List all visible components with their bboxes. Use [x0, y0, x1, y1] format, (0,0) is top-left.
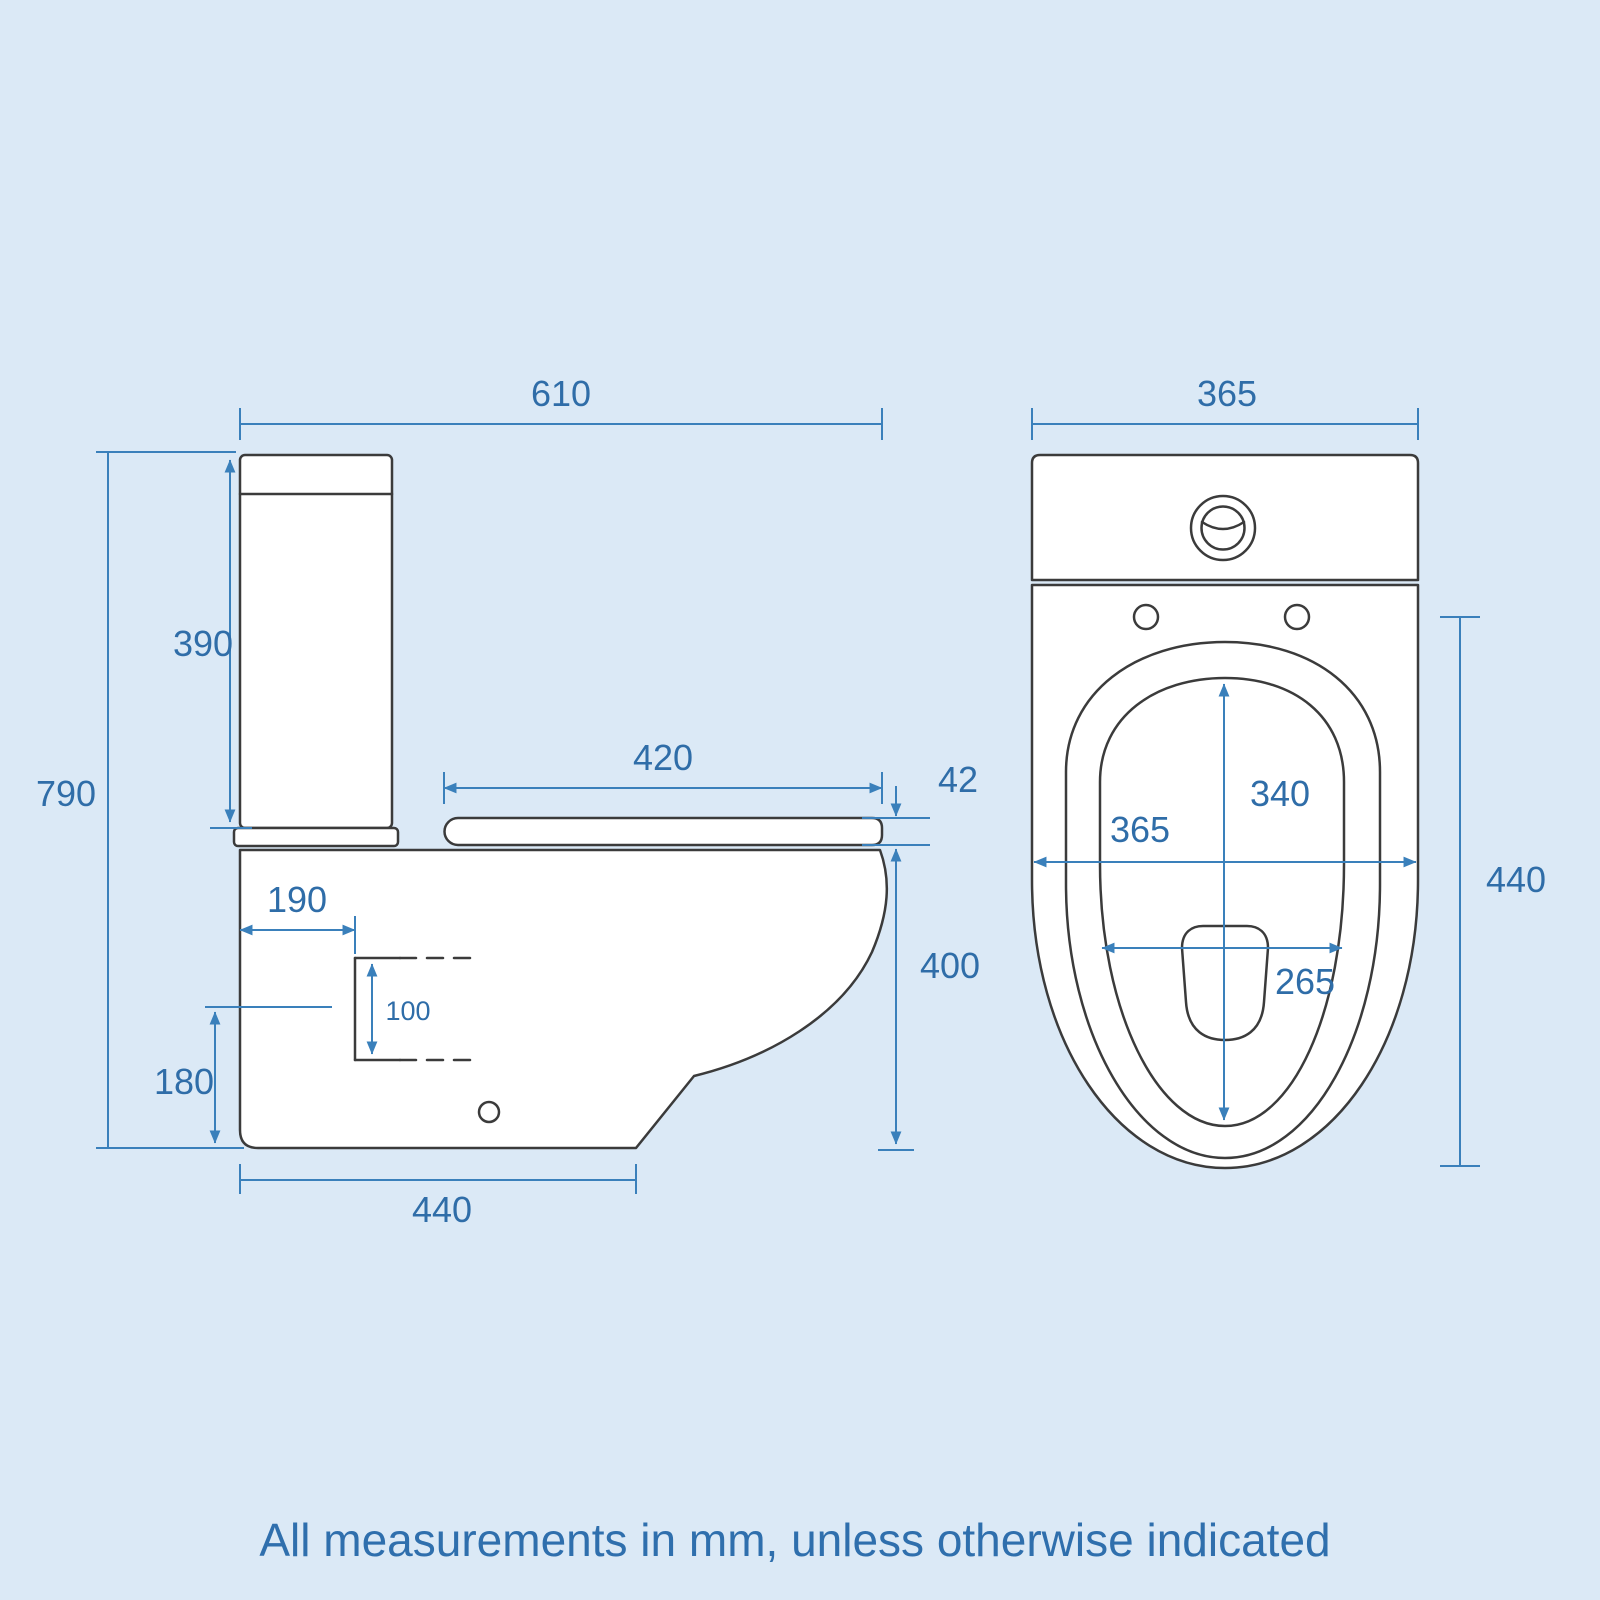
dim-side-overall-height: 790 — [36, 452, 244, 1148]
dim-side-rim-height: 400 — [878, 849, 980, 1150]
side-view: 610 790 390 420 42 — [36, 373, 980, 1230]
dim-side-outlet-setback-label: 190 — [267, 879, 327, 920]
dim-front-bowl-width-label: 265 — [1275, 961, 1335, 1002]
dim-front-cistern-width: 365 — [1032, 373, 1418, 440]
dim-front-bowl-length-label: 340 — [1250, 773, 1310, 814]
side-cistern-base-strip — [234, 828, 398, 846]
dim-side-outlet-size-label: 100 — [385, 996, 430, 1026]
dim-side-overall-depth: 610 — [240, 373, 882, 440]
dim-side-base-depth-label: 440 — [412, 1189, 472, 1230]
dim-front-cistern-width-label: 365 — [1197, 373, 1257, 414]
dim-front-pan-width-label: 365 — [1110, 809, 1170, 850]
front-view: 365 340 365 265 440 — [1032, 373, 1546, 1168]
dim-side-seat-thickness-label: 42 — [938, 759, 978, 800]
dim-front-seat-length-label: 440 — [1486, 859, 1546, 900]
flush-button-icon — [1191, 496, 1255, 560]
diagram-canvas: 610 790 390 420 42 — [0, 0, 1600, 1600]
toilet-dimension-diagram: 610 790 390 420 42 — [0, 0, 1600, 1600]
dim-side-seat-length-label: 420 — [633, 737, 693, 778]
dim-side-outlet-centre-height-label: 180 — [154, 1061, 214, 1102]
dim-front-seat-length: 440 — [1440, 617, 1546, 1166]
dim-side-overall-depth-label: 610 — [531, 373, 591, 414]
side-seat — [445, 818, 883, 845]
front-cistern — [1032, 455, 1418, 580]
side-bowl-body — [240, 850, 887, 1148]
dim-side-cistern-height-label: 390 — [173, 623, 233, 664]
measurements-note: All measurements in mm, unless otherwise… — [259, 1514, 1330, 1566]
side-cistern — [240, 455, 392, 828]
dim-side-seat-length: 420 — [444, 737, 882, 804]
dim-side-overall-height-label: 790 — [36, 773, 96, 814]
dim-side-base-depth: 440 — [240, 1164, 636, 1230]
dim-side-rim-height-label: 400 — [920, 945, 980, 986]
